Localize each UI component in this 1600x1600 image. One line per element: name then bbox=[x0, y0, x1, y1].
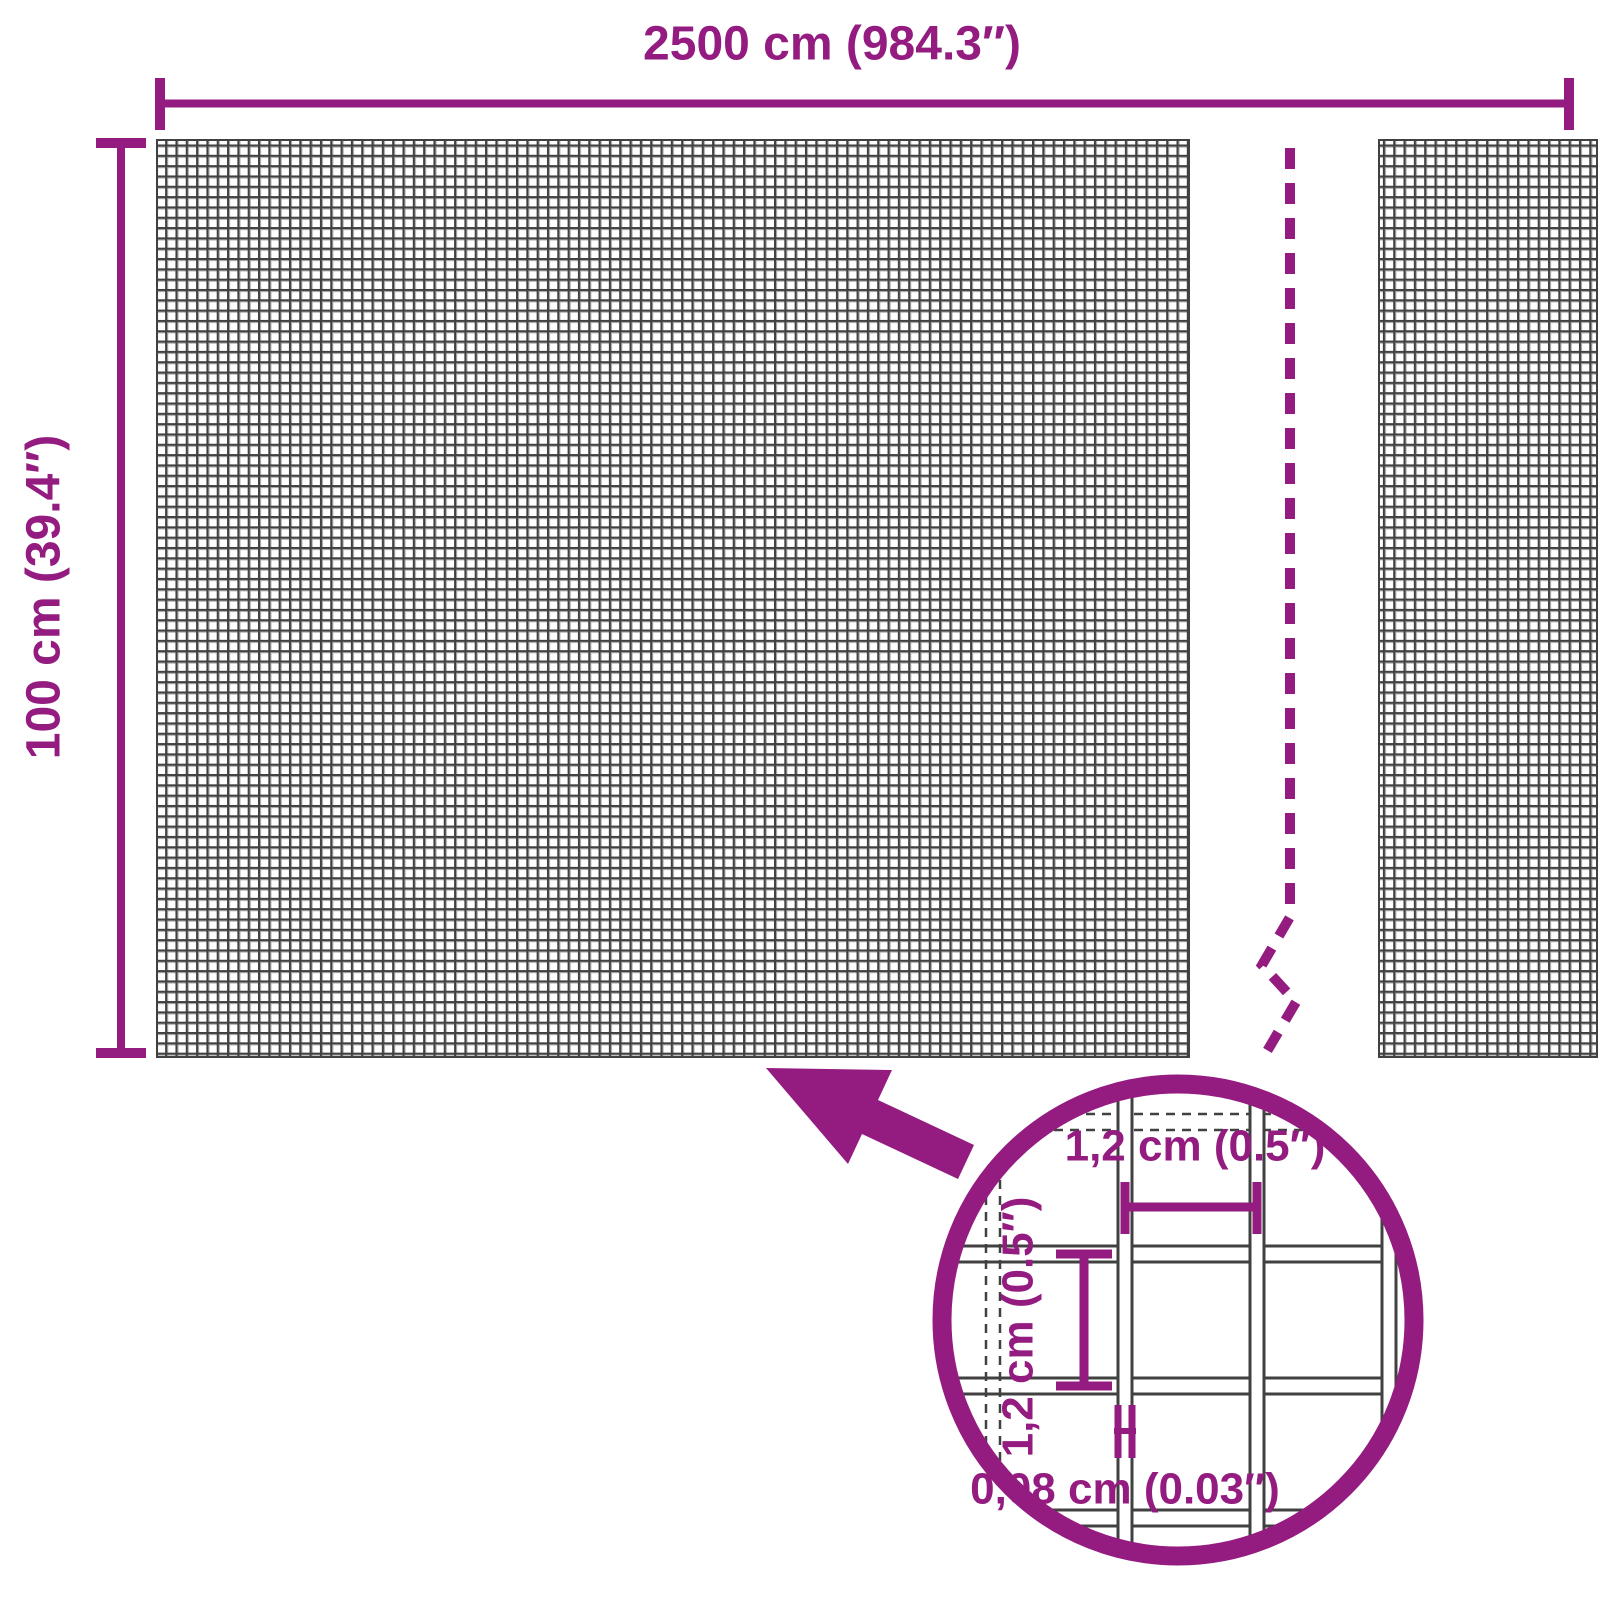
mesh-opening-width-label: 1,2 cm (0.5″) bbox=[1065, 1122, 1326, 1171]
width-dimension-line bbox=[158, 100, 1571, 108]
width-dimension-label: 2500 cm (984.3″) bbox=[643, 18, 1021, 71]
dimension-diagram: 2500 cm (984.3″) 100 cm (39.4″) bbox=[0, 0, 1600, 1600]
height-dimension-top-tick bbox=[96, 138, 146, 148]
zoom-arrow-icon bbox=[766, 1068, 974, 1179]
diagram-canvas: 2500 cm (984.3″) 100 cm (39.4″) bbox=[0, 0, 1600, 1600]
width-dimension-right-tick bbox=[1564, 78, 1574, 130]
mesh-panel-right bbox=[1379, 140, 1597, 1057]
break-line bbox=[1262, 148, 1296, 1058]
mesh-opening-height-label: 1,2 cm (0.5″) bbox=[994, 1197, 1043, 1458]
mesh-panel-left bbox=[157, 140, 1189, 1057]
height-dimension-label: 100 cm (39.4″) bbox=[18, 435, 71, 760]
height-dimension-bottom-tick bbox=[96, 1048, 146, 1058]
width-dimension-left-tick bbox=[155, 78, 165, 130]
height-dimension-line bbox=[117, 141, 125, 1053]
width-dimension: 2500 cm (984.3″) bbox=[155, 18, 1574, 131]
height-dimension: 100 cm (39.4″) bbox=[18, 138, 147, 1058]
magnifier-detail: 1,2 cm (0.5″) 1,2 cm (0.5″) 0,08 cm (0.0… bbox=[942, 1084, 1414, 1556]
